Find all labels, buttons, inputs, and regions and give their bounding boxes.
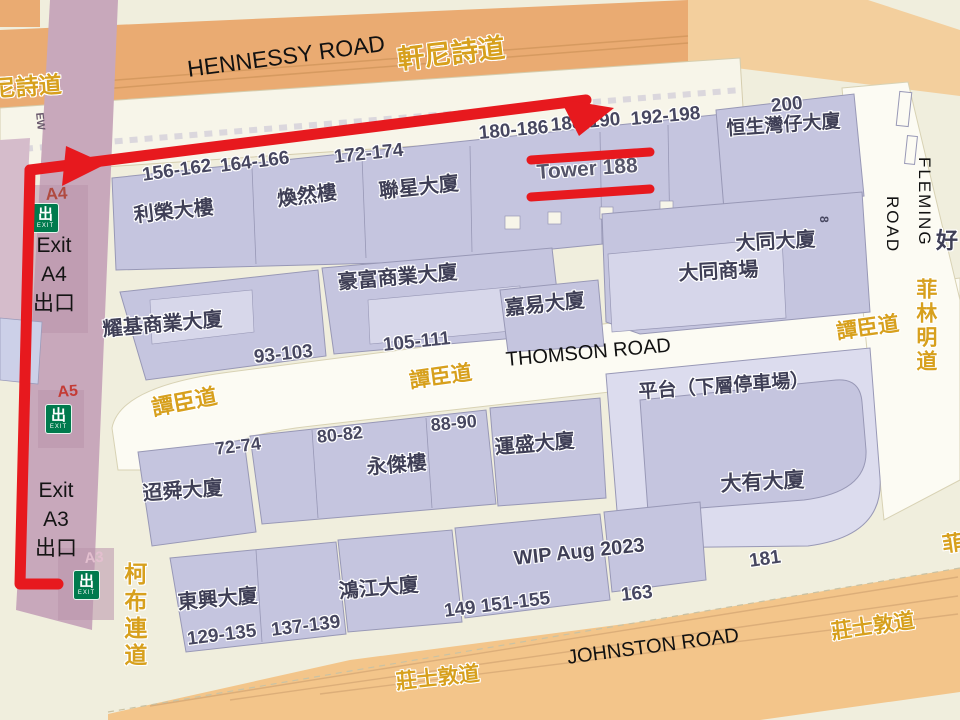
partial-label-southeast: 菲: [941, 532, 960, 557]
exit-a4-line2: A4: [14, 261, 94, 290]
exit-icon-a3: 出 EXIT: [73, 570, 100, 600]
street-label-obrien-zh: 柯布連道: [121, 562, 145, 670]
number-163: 163: [620, 583, 654, 606]
number-181: 181: [748, 548, 782, 572]
station-area-map: HENNESSY ROAD 軒尼詩道 尼詩道 譚臣道 譚臣道 THOMSON R…: [0, 0, 960, 720]
exit-icon-word: EXIT: [78, 590, 95, 596]
exit-code-a5: A5: [57, 384, 79, 402]
building-label-tai-tung-mall: 大同商場: [678, 260, 759, 285]
exit-icon-char: 出: [79, 574, 94, 589]
number-200: 200: [770, 94, 804, 117]
street-label-fleming-word1: FLEMING: [915, 157, 933, 247]
number-88-90: 88-90: [430, 412, 478, 435]
building-label-tai-tung: 大同大廈: [735, 230, 816, 255]
exit-code-a4: A4: [45, 184, 68, 203]
exit-a3-line1: Exit: [16, 477, 96, 506]
exit-icon-a5: 出 EXIT: [45, 404, 72, 434]
partial-label-northeast: 好: [936, 230, 958, 253]
exit-icon-word: EXIT: [50, 424, 67, 430]
exit-icon-a4: 出 EXIT: [32, 203, 59, 233]
building-label-tai-yau: 大有大廈: [720, 470, 805, 496]
exit-a3-line2: A3: [16, 506, 96, 535]
side-number-8: 8: [818, 216, 830, 223]
street-label-hennessy-partial-zh: 尼詩道: [0, 73, 62, 102]
road-marking-ew: EW: [33, 112, 46, 131]
street-label-fleming-word2: ROAD: [883, 196, 901, 253]
exit-icon-word: EXIT: [37, 223, 54, 229]
exit-code-a3: A3: [84, 550, 104, 567]
exit-a4-line1: Exit: [14, 232, 94, 261]
exit-icon-char: 出: [38, 207, 53, 222]
exit-a4-line3: 出口: [14, 290, 94, 319]
exit-a4-label: Exit A4 出口: [14, 232, 94, 319]
exit-icon-char: 出: [51, 408, 66, 423]
street-label-fleming-zh: 菲林明道: [914, 278, 936, 374]
